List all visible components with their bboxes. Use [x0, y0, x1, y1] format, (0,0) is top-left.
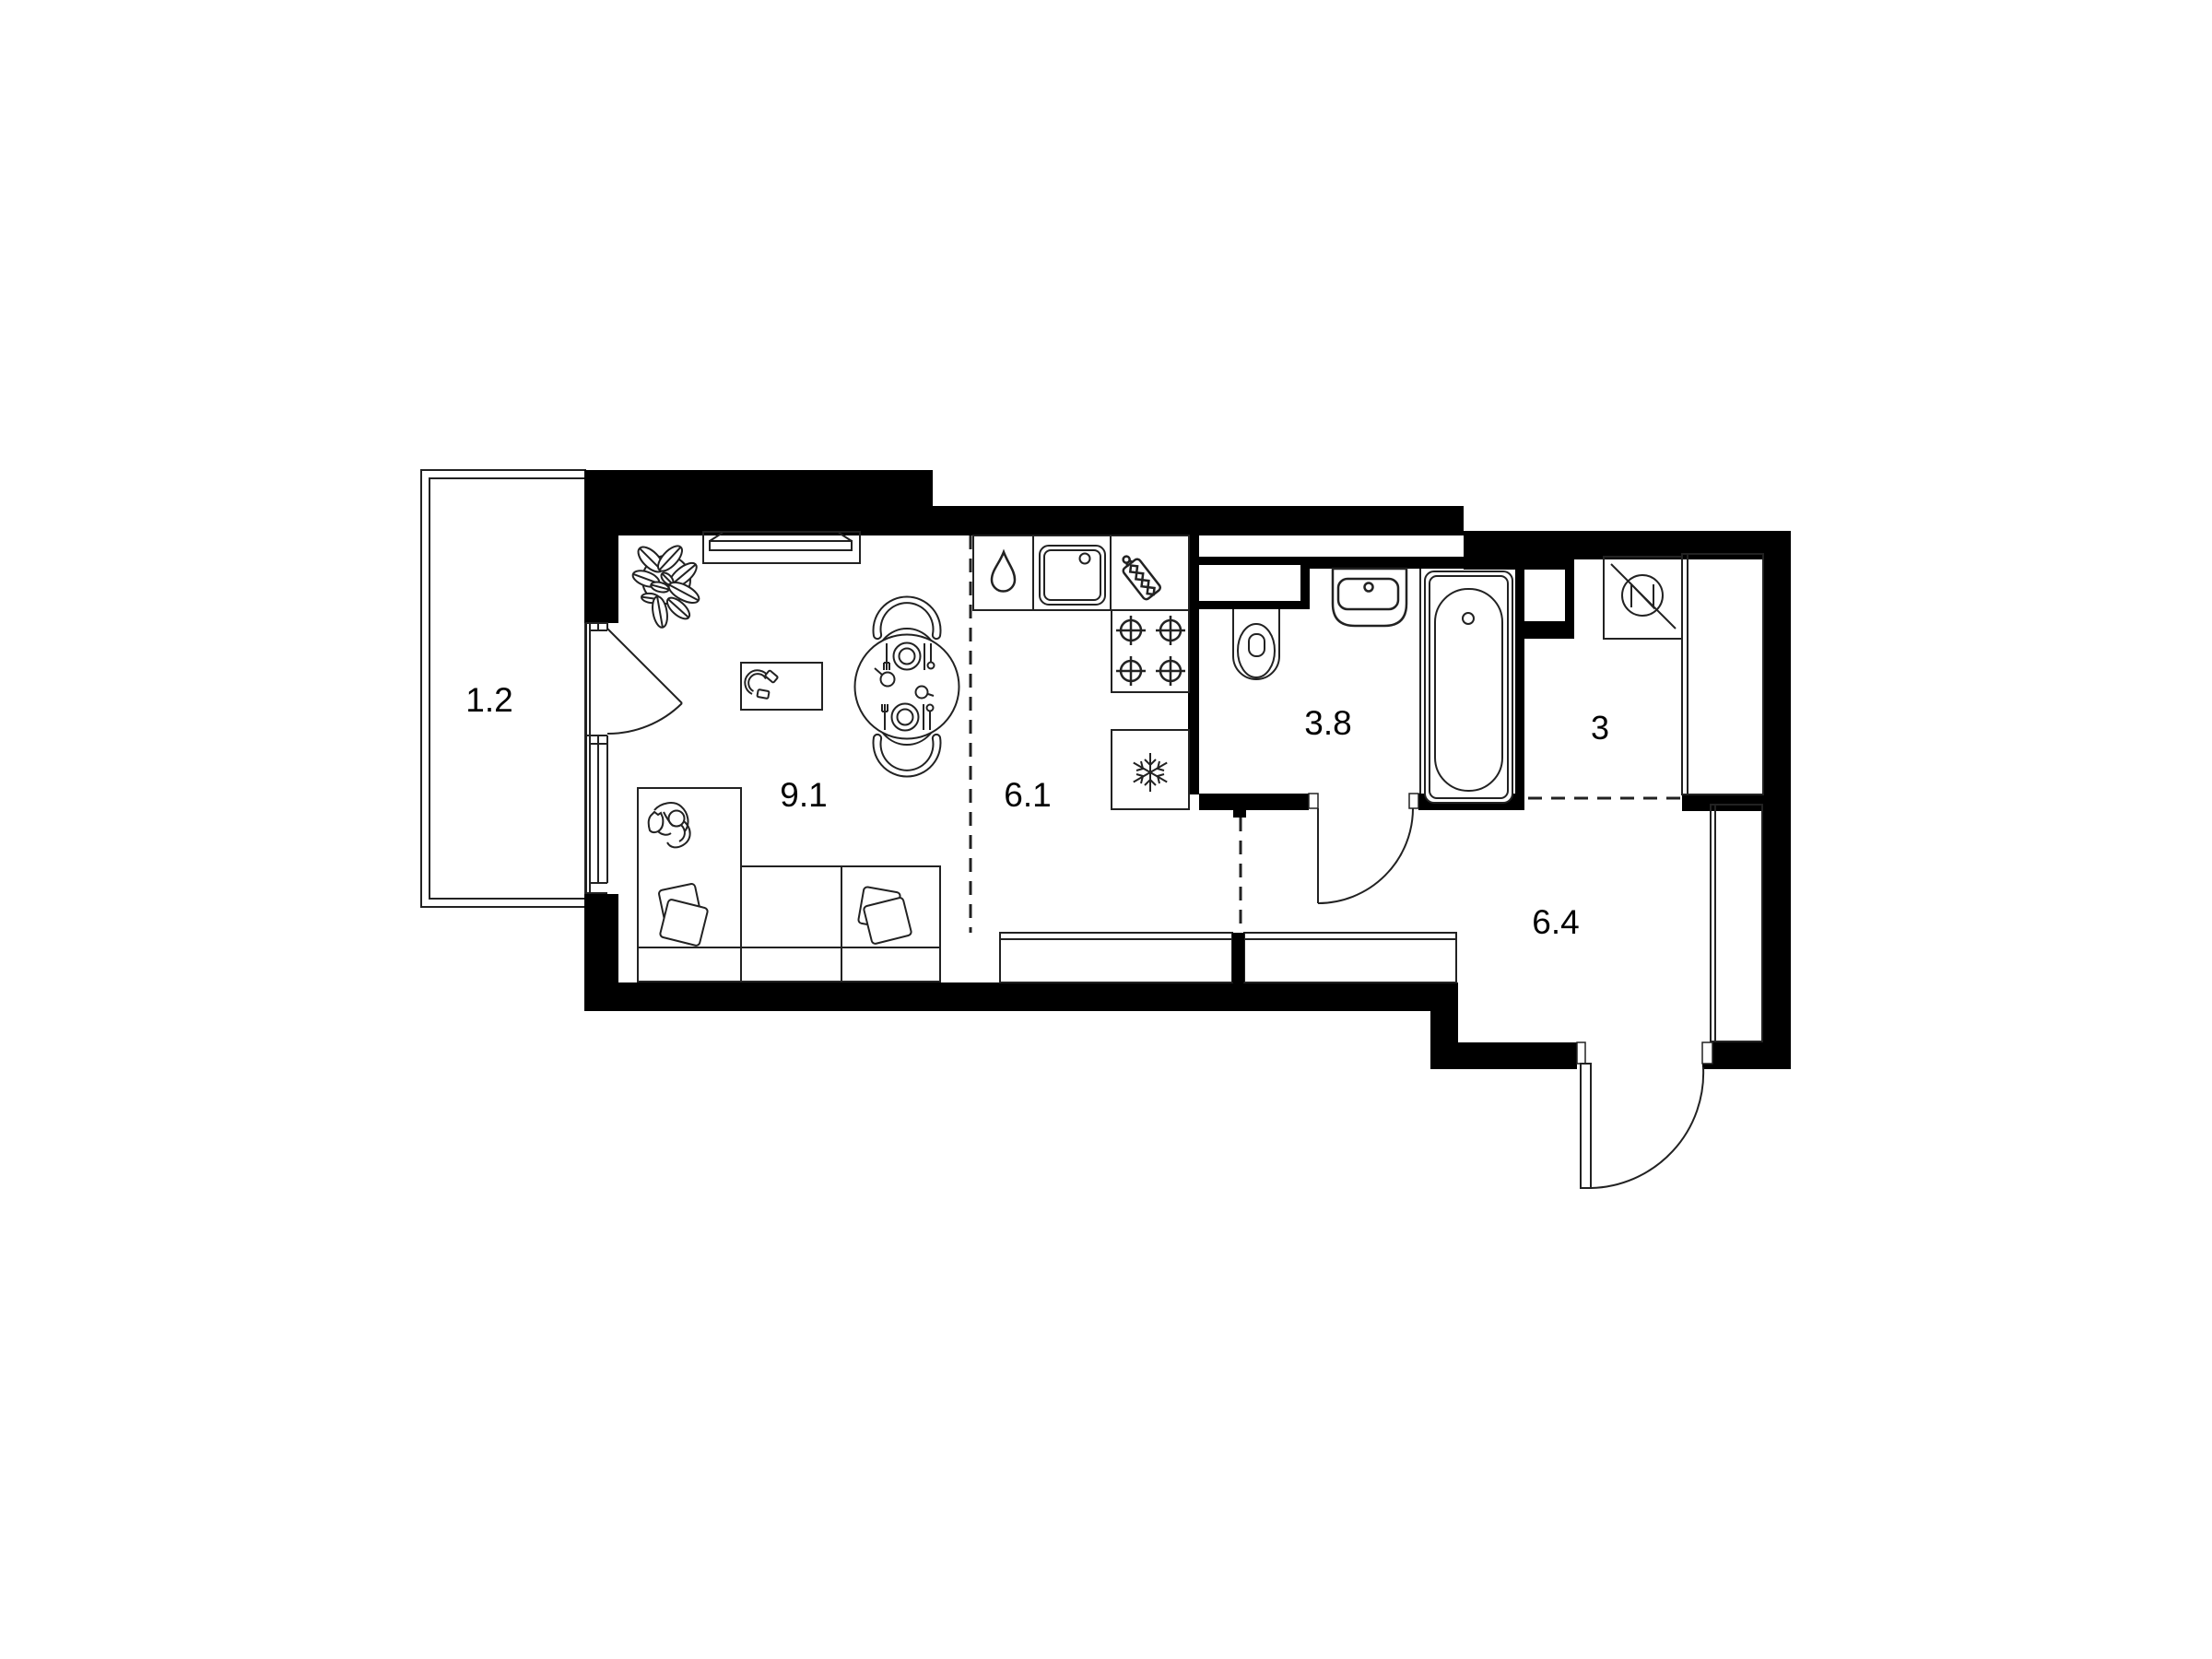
svg-text:3.8: 3.8 — [1304, 704, 1351, 742]
svg-text:9.1: 9.1 — [780, 776, 827, 814]
svg-text:1.2: 1.2 — [465, 681, 512, 719]
svg-text:6.1: 6.1 — [1004, 776, 1051, 814]
svg-text:6.4: 6.4 — [1532, 903, 1579, 941]
svg-text:3: 3 — [1591, 709, 1609, 747]
